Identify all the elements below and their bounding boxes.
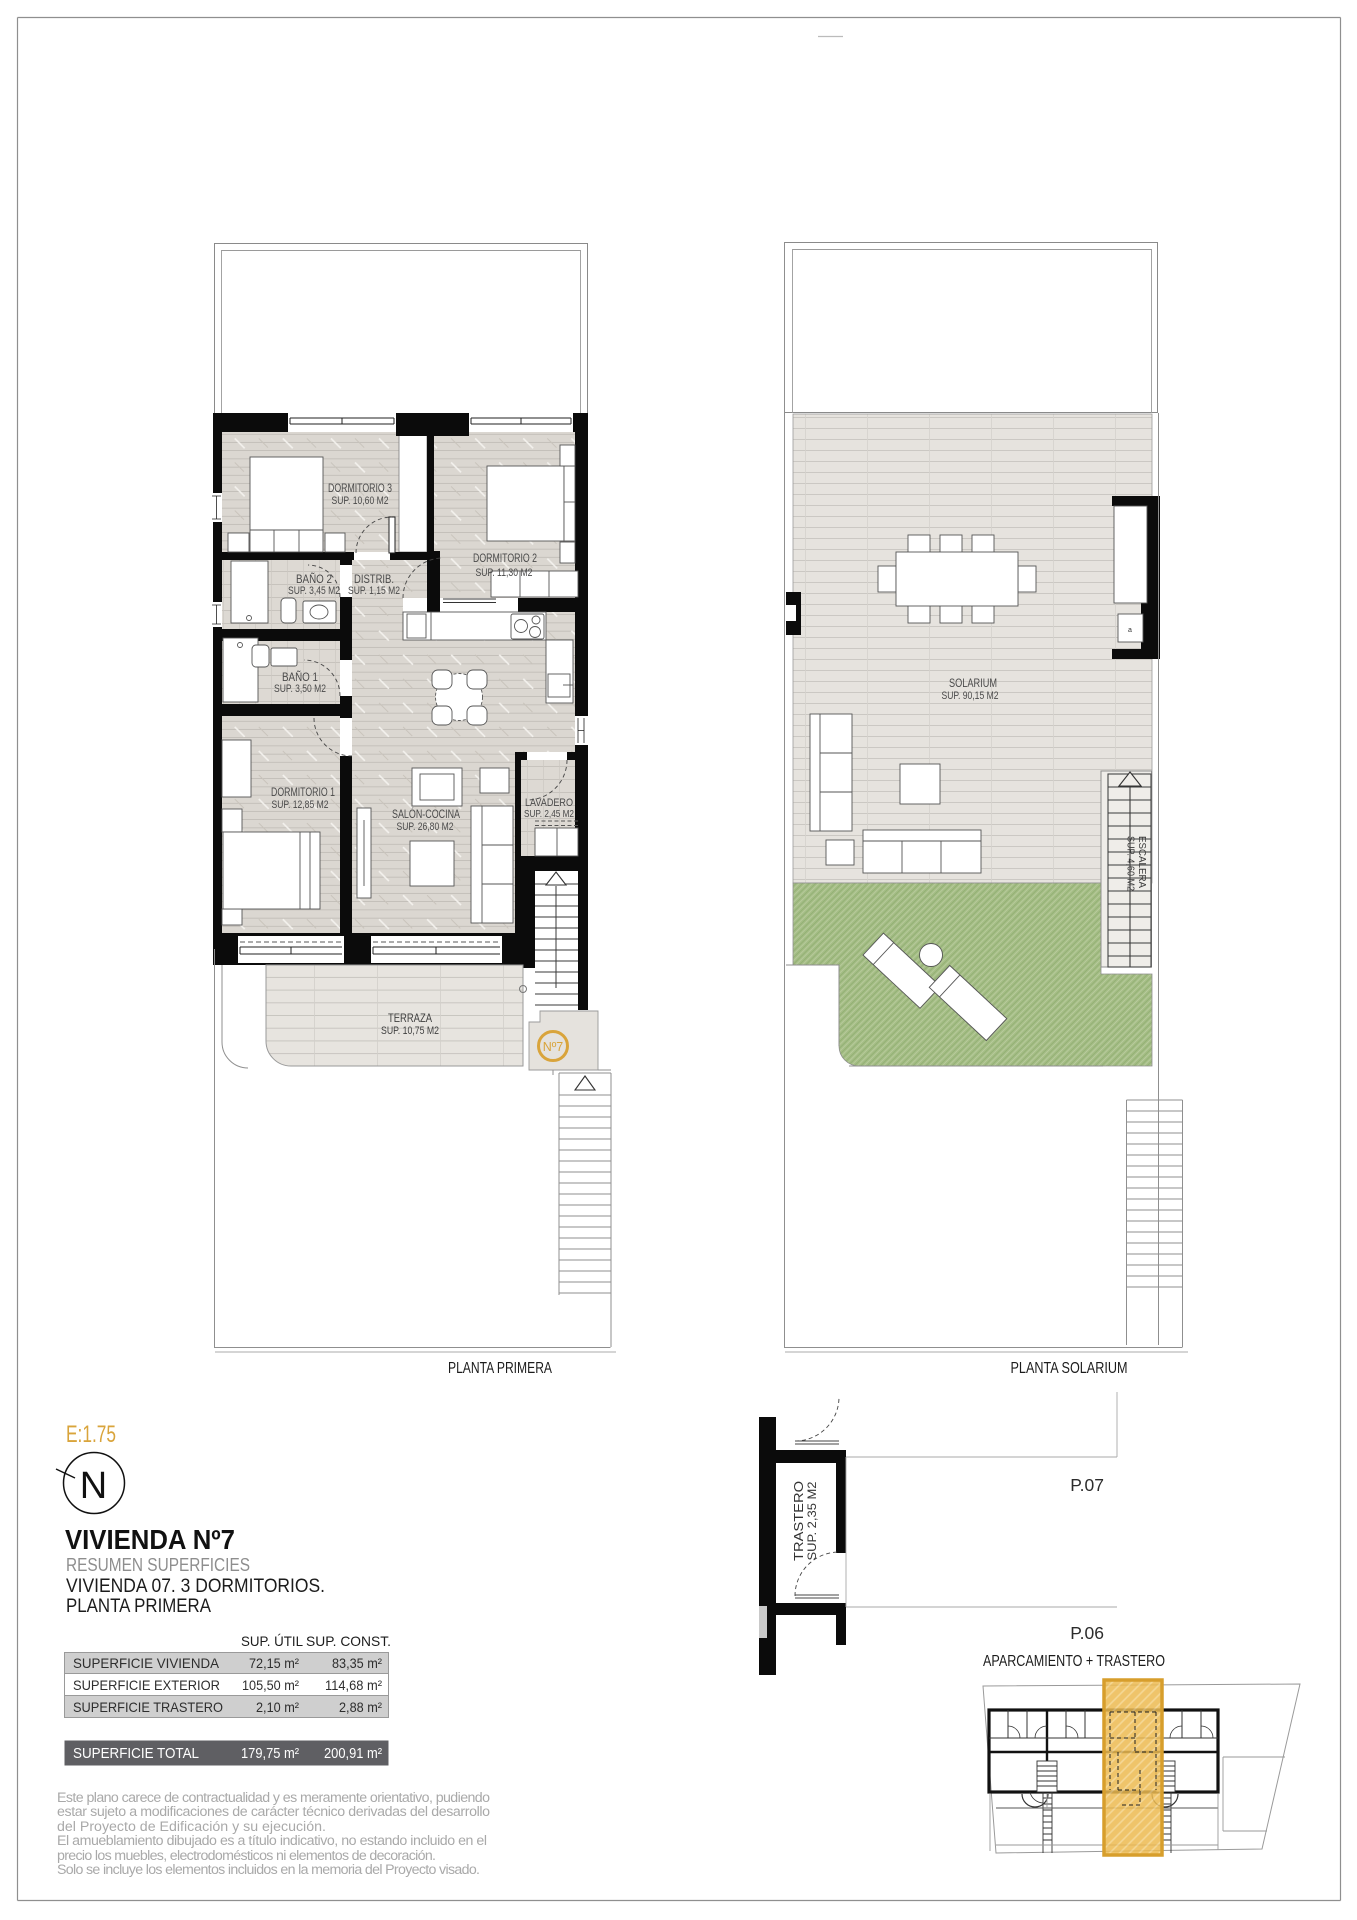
svg-text:PLANTA PRIMERA: PLANTA PRIMERA: [66, 1596, 211, 1617]
svg-text:BAÑO 2: BAÑO 2: [296, 572, 332, 586]
svg-text:RESUMEN SUPERFICIES: RESUMEN SUPERFICIES: [66, 1554, 250, 1575]
svg-text:SUPERFICIE TOTAL: SUPERFICIE TOTAL: [73, 1746, 199, 1762]
svg-text:DORMITORIO 2: DORMITORIO 2: [473, 551, 537, 565]
svg-text:SOLARIUM: SOLARIUM: [949, 676, 997, 690]
svg-text:estar sujeto a modificaciones: estar sujeto a modificaciones de carácte…: [57, 1804, 490, 1820]
svg-text:PLANTA SOLARIUM: PLANTA SOLARIUM: [1011, 1360, 1128, 1377]
svg-text:E:1.75: E:1.75: [66, 1421, 116, 1448]
svg-text:ESCALERA: ESCALERA: [1136, 836, 1148, 888]
svg-text:SUPERFICIE VIVIENDA: SUPERFICIE VIVIENDA: [73, 1655, 220, 1671]
svg-text:VIVIENDA 07. 3 DORMITORIOS.: VIVIENDA 07. 3 DORMITORIOS.: [66, 1576, 325, 1597]
svg-text:BAÑO 1: BAÑO 1: [282, 670, 318, 684]
svg-text:SUP. 11,30 M2: SUP. 11,30 M2: [476, 567, 533, 579]
svg-text:a: a: [1128, 627, 1132, 634]
svg-text:2,88 m²: 2,88 m²: [339, 1699, 382, 1715]
svg-text:SUP. 2,45 M2: SUP. 2,45 M2: [524, 809, 574, 820]
svg-text:SUP. 26,80 M2: SUP. 26,80 M2: [397, 821, 454, 833]
svg-text:VIVIENDA Nº7: VIVIENDA Nº7: [65, 1524, 235, 1555]
svg-text:TRASTERO: TRASTERO: [791, 1481, 806, 1561]
svg-text:El amueblamiento dibujado es a: El amueblamiento dibujado es a título in…: [57, 1833, 487, 1849]
svg-text:SUP. 10,60 M2: SUP. 10,60 M2: [332, 495, 389, 507]
svg-text:114,68 m²: 114,68 m²: [325, 1677, 382, 1693]
svg-text:SUP. CONST.: SUP. CONST.: [306, 1633, 391, 1649]
svg-text:APARCAMIENTO + TRASTERO: APARCAMIENTO + TRASTERO: [983, 1653, 1165, 1670]
svg-text:SUP. 4,60 M2: SUP. 4,60 M2: [1125, 836, 1136, 891]
svg-text:LAVADERO: LAVADERO: [525, 797, 573, 809]
svg-text:SUP. 90,15 M2: SUP. 90,15 M2: [942, 690, 999, 702]
svg-text:SUP. 10,75 M2: SUP. 10,75 M2: [381, 1025, 439, 1037]
svg-text:SUP. 12,85 M2: SUP. 12,85 M2: [272, 799, 329, 811]
svg-text:SUP. 1,15 M2: SUP. 1,15 M2: [348, 585, 400, 597]
svg-text:SUP. 2,35 M2: SUP. 2,35 M2: [805, 1481, 819, 1560]
svg-text:TERRAZA: TERRAZA: [388, 1011, 432, 1025]
svg-text:SUP. 3,50 M2: SUP. 3,50 M2: [274, 683, 326, 695]
svg-text:N: N: [80, 1465, 107, 1507]
svg-text:SUP. 3,45 M2: SUP. 3,45 M2: [288, 585, 340, 597]
svg-text:SUPERFICIE EXTERIOR: SUPERFICIE EXTERIOR: [73, 1677, 220, 1693]
svg-text:2,10 m²: 2,10 m²: [256, 1699, 299, 1715]
svg-text:83,35 m²: 83,35 m²: [332, 1655, 382, 1671]
svg-text:DORMITORIO 3: DORMITORIO 3: [328, 481, 392, 495]
svg-text:Solo se incluye los elementos: Solo se incluye los elementos incluidos …: [57, 1862, 480, 1878]
svg-text:DISTRIB.: DISTRIB.: [354, 572, 394, 586]
svg-text:SUPERFICIE TRASTERO: SUPERFICIE TRASTERO: [73, 1699, 223, 1715]
svg-text:200,91 m²: 200,91 m²: [324, 1746, 382, 1762]
svg-text:DORMITORIO 1: DORMITORIO 1: [271, 785, 335, 799]
svg-text:Nº7: Nº7: [543, 1040, 564, 1054]
svg-text:179,75 m²: 179,75 m²: [241, 1746, 299, 1762]
svg-text:P.07: P.07: [1070, 1475, 1104, 1495]
svg-text:SALÓN-COCINA: SALÓN-COCINA: [392, 806, 460, 821]
svg-text:SUP. ÚTIL: SUP. ÚTIL: [241, 1633, 303, 1649]
svg-text:PLANTA PRIMERA: PLANTA PRIMERA: [448, 1360, 553, 1377]
svg-text:P.06: P.06: [1070, 1623, 1104, 1643]
svg-text:72,15 m²: 72,15 m²: [249, 1655, 299, 1671]
svg-text:105,50 m²: 105,50 m²: [242, 1677, 299, 1693]
